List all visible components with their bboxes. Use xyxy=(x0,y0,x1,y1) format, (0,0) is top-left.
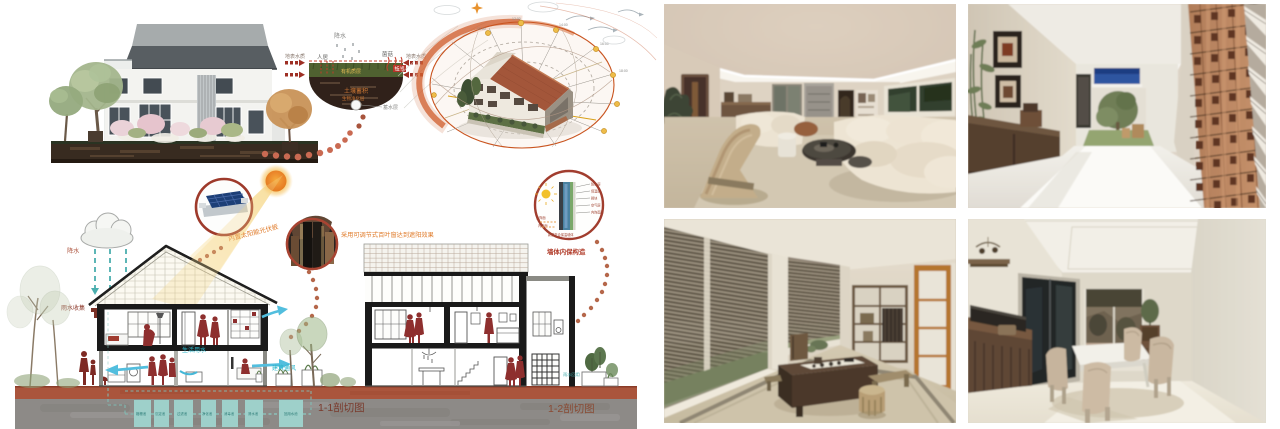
svg-text:人居: 人居 xyxy=(317,54,329,61)
svg-text:14:00: 14:00 xyxy=(559,23,568,27)
svg-text:内饰面层: 内饰面层 xyxy=(591,210,604,215)
svg-text:雨水回用: 雨水回用 xyxy=(563,371,580,378)
svg-text:外饰面: 外饰面 xyxy=(536,215,546,220)
svg-text:消毒池: 消毒池 xyxy=(224,411,235,416)
svg-text:净化池: 净化池 xyxy=(202,411,213,416)
svg-text:清水池: 清水池 xyxy=(248,411,259,416)
svg-text:墙体内保构造: 墙体内保构造 xyxy=(547,247,586,256)
svg-text:砌块: 砌块 xyxy=(591,196,598,201)
svg-text:过滤池: 过滤池 xyxy=(177,411,188,416)
svg-text:空气层: 空气层 xyxy=(591,203,601,208)
svg-text:回用水池: 回用水池 xyxy=(284,411,298,416)
svg-text:10:00: 10:00 xyxy=(477,27,486,31)
svg-text:降水: 降水 xyxy=(67,247,80,255)
svg-text:格栅池: 格栅池 xyxy=(136,411,147,416)
svg-text:有机质层: 有机质层 xyxy=(341,68,361,75)
svg-text:蓄水层: 蓄水层 xyxy=(383,104,398,111)
svg-text:采用可调节式百叶窗达到遮阳效果: 采用可调节式百叶窗达到遮阳效果 xyxy=(341,231,434,239)
svg-text:12:00: 12:00 xyxy=(512,17,521,21)
svg-text:新型复合保温墙体: 新型复合保温墙体 xyxy=(548,232,574,237)
svg-text:地表水质: 地表水质 xyxy=(285,53,305,60)
svg-text:菌菇: 菌菇 xyxy=(382,50,394,58)
svg-text:防水层: 防水层 xyxy=(591,182,601,187)
svg-text:16:00: 16:00 xyxy=(600,42,609,46)
svg-text:生活用水: 生活用水 xyxy=(182,346,206,354)
svg-text:1-2剖切图: 1-2剖切图 xyxy=(548,402,595,415)
svg-text:降水: 降水 xyxy=(334,32,346,40)
svg-text:沉淀池: 沉淀池 xyxy=(155,411,166,416)
svg-text:1-1剖切图: 1-1剖切图 xyxy=(318,401,365,414)
svg-text:土壤蓄积: 土壤蓄积 xyxy=(344,87,368,95)
svg-text:18:00: 18:00 xyxy=(619,69,628,73)
svg-text:保温层: 保温层 xyxy=(591,189,601,194)
